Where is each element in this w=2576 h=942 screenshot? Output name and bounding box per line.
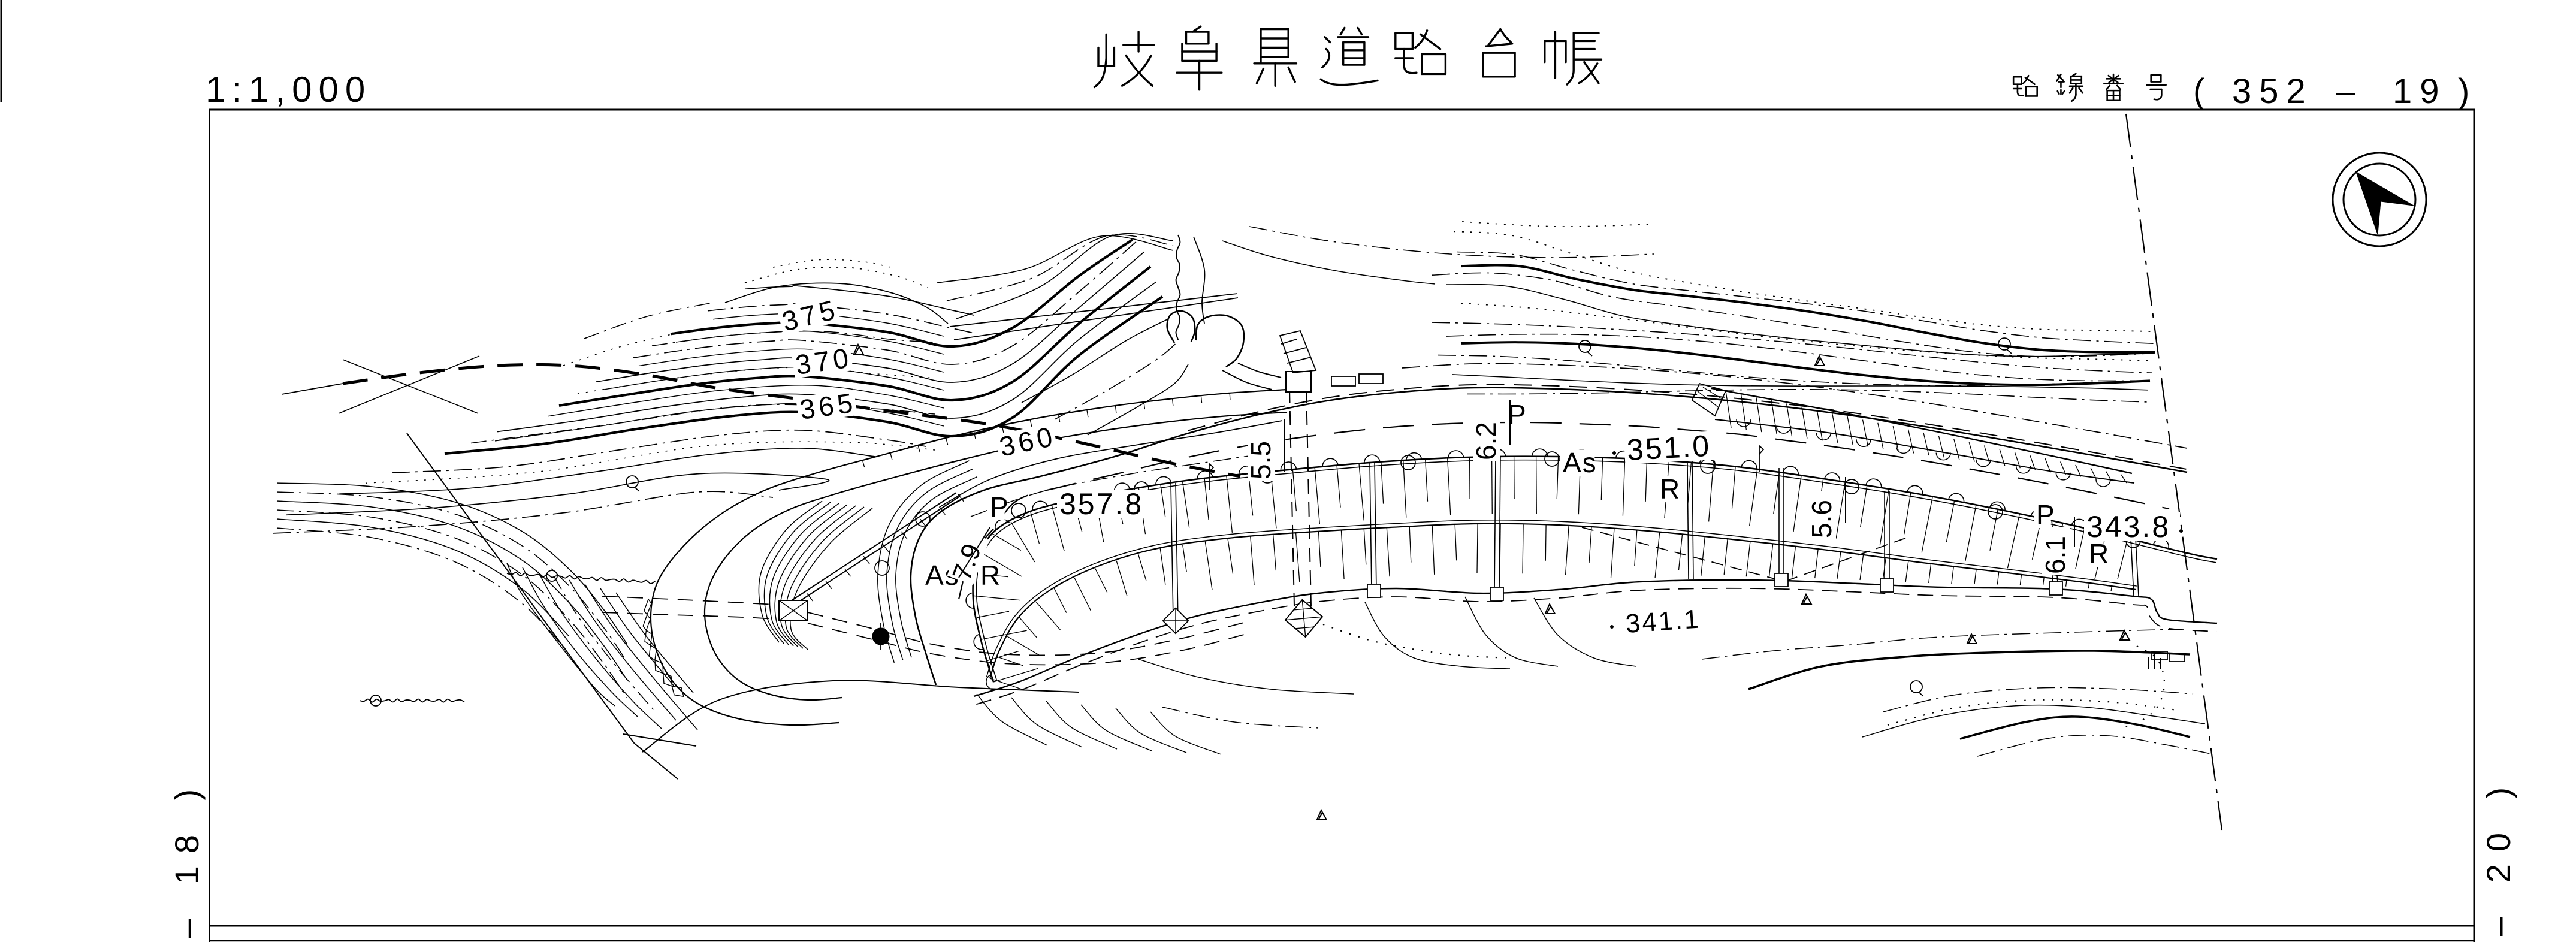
- svg-text:As: As: [1563, 447, 1597, 478]
- svg-text:1:1,000: 1:1,000: [206, 70, 372, 110]
- svg-text:P: P: [2036, 499, 2056, 530]
- svg-text:375: 375: [779, 293, 842, 337]
- svg-text:– 20 ): – 20 ): [2480, 775, 2517, 936]
- svg-text:5.6: 5.6: [1806, 500, 1837, 538]
- svg-text:– 18 ): – 18 ): [168, 777, 206, 938]
- svg-text:6.1: 6.1: [2040, 536, 2071, 574]
- svg-text:357.8: 357.8: [1059, 487, 1143, 521]
- svg-text:19: 19: [2393, 72, 2447, 111]
- svg-text:352: 352: [2232, 72, 2314, 111]
- svg-text:341.1: 341.1: [1624, 604, 1701, 639]
- svg-text:(: (: [2193, 72, 2215, 111]
- svg-text:R: R: [1660, 473, 1681, 505]
- svg-text:P: P: [990, 491, 1010, 523]
- svg-text:5.5: 5.5: [1245, 441, 1276, 479]
- svg-text:R: R: [2089, 538, 2110, 569]
- svg-text:–: –: [2336, 72, 2355, 111]
- svg-text:370: 370: [793, 342, 854, 381]
- svg-text:6.2: 6.2: [1470, 422, 1502, 460]
- svg-text:365: 365: [798, 387, 858, 425]
- svg-text:R: R: [980, 560, 1001, 591]
- svg-text:351.0: 351.0: [1626, 429, 1712, 467]
- svg-text:): ): [2458, 72, 2469, 111]
